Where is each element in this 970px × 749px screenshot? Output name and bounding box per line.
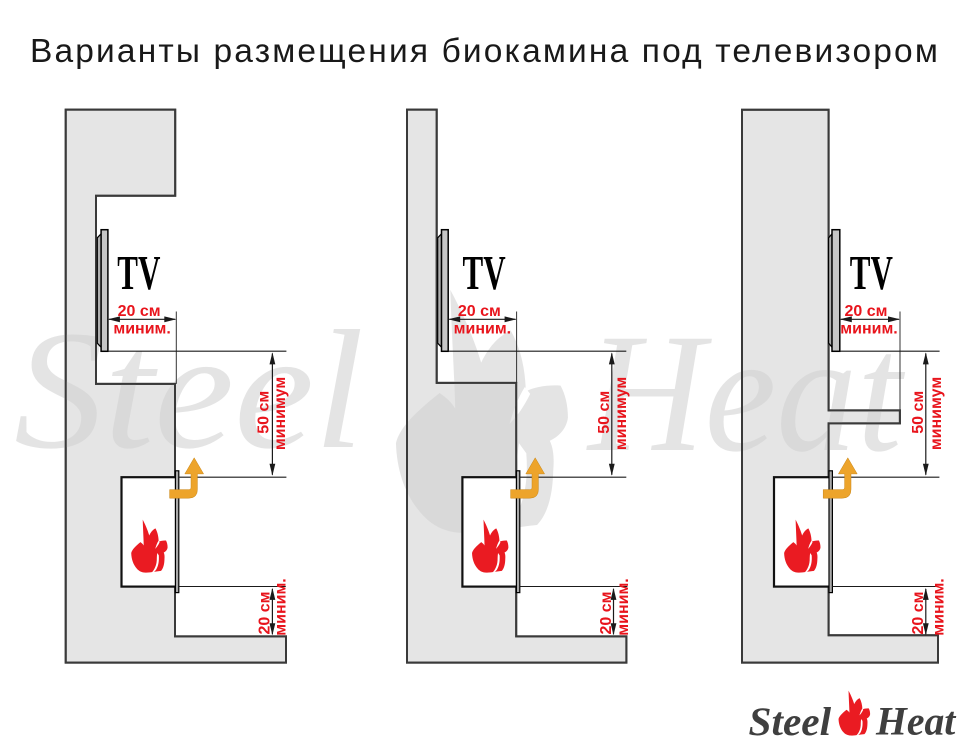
svg-text:TV: TV [117, 246, 160, 300]
svg-text:миним.: миним. [113, 321, 170, 338]
svg-text:миним.: миним. [615, 578, 632, 635]
svg-text:20 см: 20 см [910, 592, 927, 635]
svg-text:Steel: Steel [749, 699, 832, 744]
svg-text:минимум: минимум [928, 377, 945, 450]
svg-text:TV: TV [850, 246, 893, 300]
svg-text:50 см: 50 см [910, 391, 927, 434]
svg-text:миним.: миним. [454, 321, 511, 338]
svg-text:миним.: миним. [273, 578, 290, 635]
svg-text:TV: TV [463, 246, 506, 300]
svg-text:50 см: 50 см [596, 391, 613, 434]
svg-text:Heat: Heat [875, 698, 957, 743]
svg-text:миним.: миним. [931, 578, 948, 635]
svg-text:50 см: 50 см [255, 391, 272, 434]
svg-text:20 см: 20 см [256, 592, 273, 635]
svg-text:20 см: 20 см [598, 592, 615, 635]
svg-text:20 см: 20 см [845, 303, 888, 320]
svg-text:Варианты размещения биокамина: Варианты размещения биокамина под телеви… [30, 33, 940, 70]
svg-text:20 см: 20 см [458, 303, 501, 320]
svg-text:минимум: минимум [613, 377, 630, 450]
svg-text:миним.: миним. [840, 321, 897, 338]
svg-text:20 см: 20 см [118, 303, 161, 320]
svg-text:минимум: минимум [272, 377, 289, 450]
